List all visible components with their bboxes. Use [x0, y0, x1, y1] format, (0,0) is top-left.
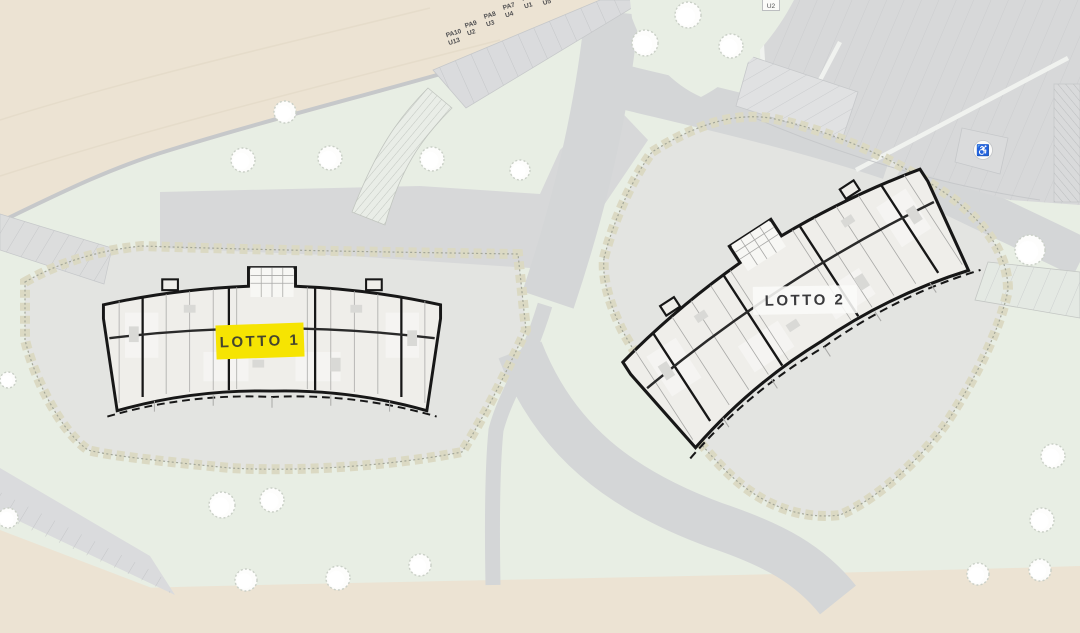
tree-icon [409, 554, 431, 576]
tree-icon [1030, 508, 1054, 532]
tree-icon [260, 488, 284, 512]
tree-icon [326, 566, 350, 590]
tree-icon [235, 569, 257, 591]
tree-icon [318, 146, 342, 170]
tree-icon [274, 101, 296, 123]
tree-icon [967, 563, 989, 585]
edge-unit-label: U2 [762, 0, 780, 11]
disabled-parking-icon: ♿ [976, 144, 990, 157]
site-plan-svg: ♿ [0, 0, 1080, 633]
tree-icon [0, 372, 16, 388]
site-plan: ♿ LOTTO 1 LOTTO 2 PA10 U13 PA9 U2 PA8 U3… [0, 0, 1080, 633]
tree-icon [719, 34, 743, 58]
tree-icon [1041, 444, 1065, 468]
tree-icon [1029, 559, 1051, 581]
lotto1-label[interactable]: LOTTO 1 [215, 322, 304, 359]
tree-icon [1015, 235, 1045, 265]
tree-icon [675, 2, 701, 28]
tree-icon [510, 160, 530, 180]
tree-icon [209, 492, 235, 518]
tree-icon [420, 147, 444, 171]
lotto2-label[interactable]: LOTTO 2 [753, 285, 857, 315]
tree-icon [632, 30, 658, 56]
tree-icon [231, 148, 255, 172]
